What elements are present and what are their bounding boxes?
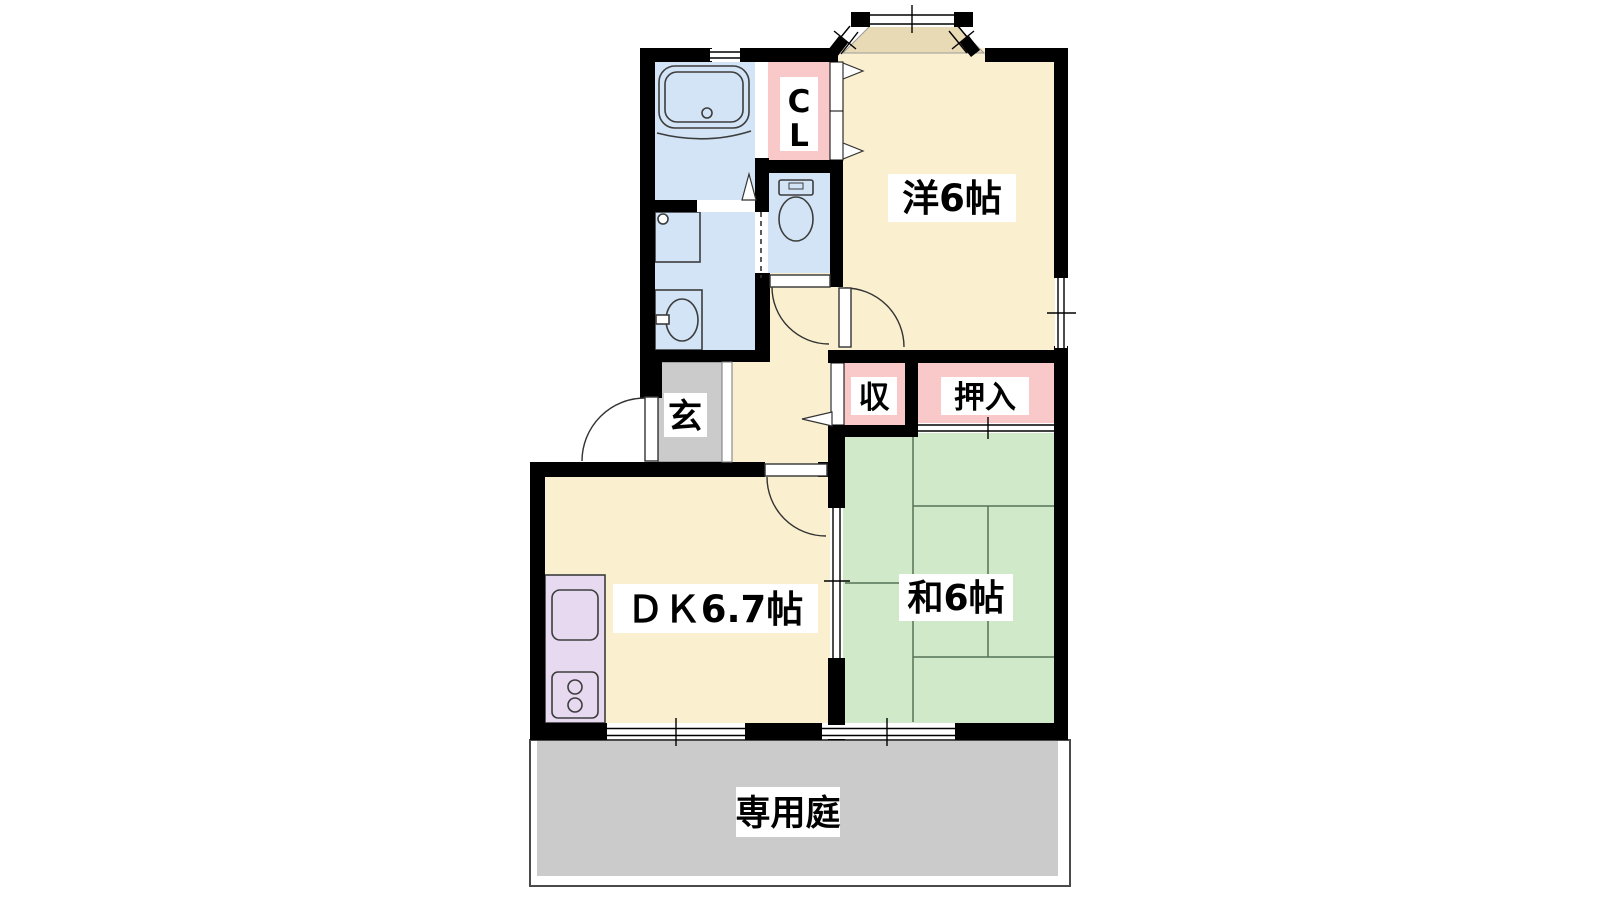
entrance-door <box>582 397 658 461</box>
entrance-step <box>722 362 732 462</box>
bathroom-opening <box>697 200 755 212</box>
label-oshiire: 押入 <box>941 377 1029 416</box>
label-private-garden: 専用庭 <box>735 787 840 837</box>
washroom-floor <box>655 212 755 350</box>
closet-label-c: C <box>788 84 811 120</box>
japanese-room-label: 和6帖 <box>907 578 1004 619</box>
entrance-label: 玄 <box>668 397 702 437</box>
bath-window <box>710 49 740 61</box>
kitchen-counter-icon <box>545 575 605 723</box>
label-western-room: 洋6帖 <box>888 174 1016 222</box>
dining-kitchen-label: ＤＫ6.7帖 <box>627 588 804 631</box>
western-room-label: 洋6帖 <box>902 177 1002 220</box>
bathroom-floor <box>655 62 755 202</box>
closet-doors <box>830 62 843 160</box>
label-japanese-room: 和6帖 <box>899 574 1013 621</box>
floor-plan-page: 洋6帖 C L 玄 収 押入 和6帖 ＤＫ6.7帖 専用庭 <box>0 0 1600 900</box>
label-dining-kitchen: ＤＫ6.7帖 <box>613 584 818 633</box>
storage-door <box>831 363 844 425</box>
room-fills <box>530 26 1070 886</box>
toilet-room-floor <box>768 173 830 273</box>
closet-label-l: L <box>789 118 809 154</box>
oshiire-label: 押入 <box>954 380 1016 416</box>
floor-plan: 洋6帖 C L 玄 収 押入 和6帖 ＤＫ6.7帖 専用庭 <box>0 0 1600 900</box>
label-storage: 収 <box>851 377 897 416</box>
storage-label: 収 <box>859 380 890 416</box>
label-entrance: 玄 <box>664 393 707 437</box>
private-garden-label: 専用庭 <box>735 793 840 834</box>
label-closet: C L <box>780 77 818 154</box>
